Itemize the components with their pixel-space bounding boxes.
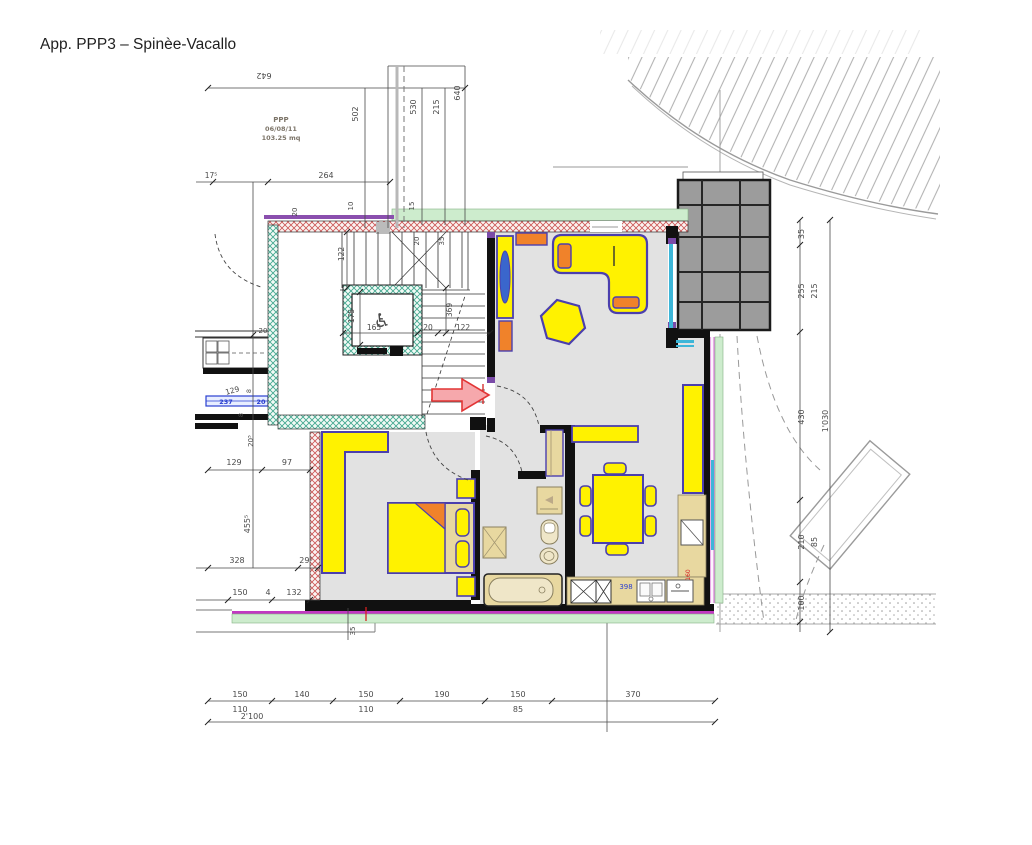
dim-left-132: 132 <box>286 588 301 597</box>
neighbour-unit <box>195 331 271 429</box>
dim-bottom-370: 370 <box>625 690 640 699</box>
dim-left-97: 97 <box>282 458 292 467</box>
info-area: 103.25 mq <box>262 134 301 142</box>
dim-bottom-110b: 110 <box>358 705 373 714</box>
dim-window-237: 237 <box>219 398 233 406</box>
dim-10: 10 <box>347 202 355 211</box>
living-window <box>669 244 673 328</box>
dim-left-455-5: 455⁵ <box>243 515 252 533</box>
living-stair-wall <box>487 232 495 383</box>
dim-stair-369: 369 <box>445 303 454 318</box>
stairwell-left-wall <box>268 225 278 425</box>
dining-table <box>593 475 643 543</box>
dim-640: 640 <box>453 85 462 100</box>
dim-17-5: 17⁵ <box>205 171 218 180</box>
floor-plan-drawing: ♿ <box>0 0 1032 845</box>
info-name: PPP <box>273 116 288 124</box>
balcony-door-swing <box>215 234 261 287</box>
dim-bottom-total: 2'100 <box>241 712 264 721</box>
dim-left-4: 4 <box>265 588 270 597</box>
dim-15: 15 <box>408 202 416 211</box>
pillow <box>456 509 469 536</box>
dim-elev-20: 20 <box>423 323 433 332</box>
dim-20: 20 <box>291 208 299 217</box>
sofa-cushion <box>613 297 639 308</box>
dim-left-20: 20 <box>259 327 268 335</box>
dim-bottom-150b: 150 <box>358 690 373 699</box>
corridor-south-wall <box>278 415 425 429</box>
floor-plan-page: App. PPP3 – Spinèe-Vacallo <box>0 0 1032 845</box>
plant <box>500 251 510 303</box>
dim-right-85: 85 <box>810 537 819 547</box>
tall-cabinet <box>683 385 703 493</box>
insulation-band-right <box>715 337 723 603</box>
dim-window-20: 20 <box>256 398 266 406</box>
dim-bottom-140: 140 <box>294 690 309 699</box>
ground-band <box>716 594 936 624</box>
dim-stair-122b: 122 <box>456 323 471 332</box>
dim-502: 502 <box>351 106 360 121</box>
dim-left-8b: 8 <box>237 413 245 417</box>
dim-642: 642 <box>256 71 271 80</box>
dim-530: 530 <box>409 99 418 114</box>
dim-bottom-150c: 150 <box>510 690 525 699</box>
dim-left-8a: 8 <box>245 389 253 393</box>
cabinet-orange <box>499 321 512 351</box>
pillow <box>456 541 469 567</box>
dim-left-328: 328 <box>229 556 244 565</box>
terrace-door <box>676 345 694 347</box>
insulation-band-bottom <box>232 614 714 623</box>
info-box: PPP 06/08/11 103.25 mq <box>262 116 301 142</box>
dim-bl-35: 35 <box>349 627 357 636</box>
dim-264: 264 <box>318 171 333 180</box>
nightstand <box>457 479 475 498</box>
dim-left-20-5: 20⁵ <box>247 435 255 447</box>
dim-right-430: 430 <box>797 409 806 424</box>
dim-right-255: 255 <box>797 283 806 298</box>
sideboard <box>572 426 638 442</box>
dim-right-215: 215 <box>810 283 819 298</box>
dim-elev-165: 165 <box>367 323 382 332</box>
dim-bottom-190: 190 <box>434 690 449 699</box>
insulation-band-top <box>392 209 688 221</box>
bedroom-left-wall <box>310 432 320 600</box>
dim-left-29-5: 29⁵ <box>299 556 312 565</box>
dim-right-35: 35 <box>797 229 806 239</box>
bidet <box>540 548 558 564</box>
dim-right-1030: 1'030 <box>821 410 830 433</box>
dim-right-100: 100 <box>797 595 806 610</box>
dim-left-129: 129 <box>224 384 240 396</box>
sideboard-orange <box>516 233 547 245</box>
faint-text-band <box>600 30 920 54</box>
dim-right-210: 210 <box>797 534 806 549</box>
dim-elev-175: 175 <box>347 309 356 324</box>
dim-kitchen-398: 398 <box>619 583 632 591</box>
skylight-outline <box>790 441 910 569</box>
dim-bottom-150a: 150 <box>232 690 247 699</box>
dim-wall-20: 20 <box>413 237 421 246</box>
dim-215: 215 <box>432 99 441 114</box>
info-date: 06/08/11 <box>265 125 297 133</box>
dim-wall-35: 35 <box>438 237 446 246</box>
dim-kitchen-160: 160 <box>685 569 692 581</box>
sofa-cushion <box>558 244 571 268</box>
exterior-wall-top <box>268 221 688 232</box>
terrace <box>678 172 770 330</box>
bedroom-south-wall <box>305 600 471 611</box>
hall-closet <box>546 430 563 476</box>
dim-bottom-85: 85 <box>513 705 523 714</box>
dining-window <box>711 460 714 550</box>
dim-stair-122: 122 <box>337 247 346 262</box>
dim-left-129b: 129 <box>226 458 241 467</box>
dim-left-150: 150 <box>232 588 247 597</box>
nightstand <box>457 577 475 596</box>
